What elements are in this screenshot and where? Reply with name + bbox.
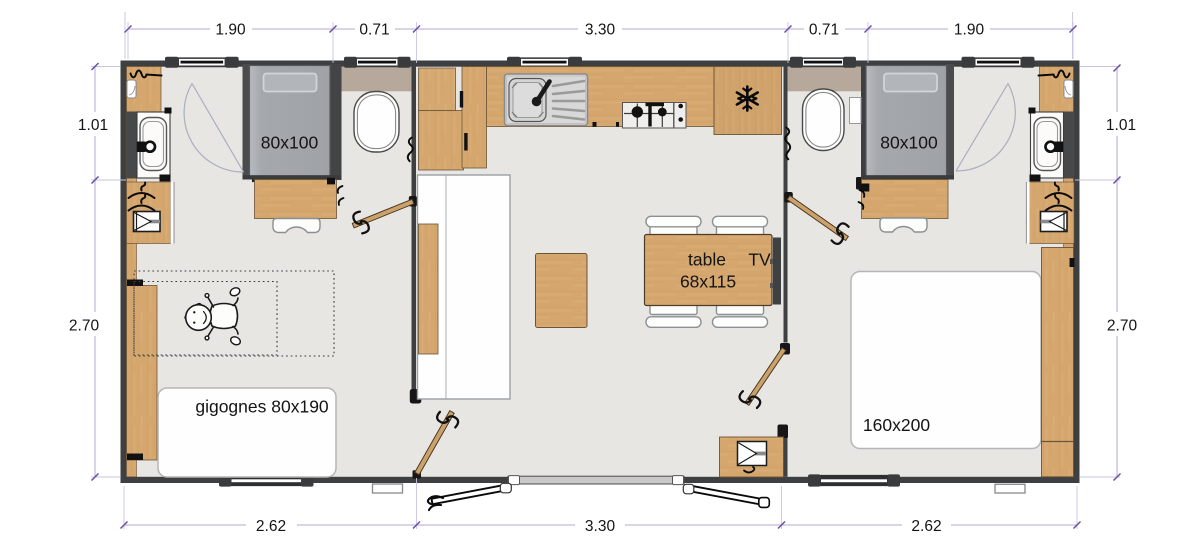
svg-text:TV: TV bbox=[748, 250, 771, 270]
svg-text:0.71: 0.71 bbox=[809, 22, 839, 39]
svg-text:0.71: 0.71 bbox=[359, 22, 389, 39]
svg-text:2.62: 2.62 bbox=[256, 518, 286, 535]
svg-text:3.30: 3.30 bbox=[585, 518, 616, 535]
svg-text:80x100: 80x100 bbox=[261, 133, 319, 153]
svg-text:2.70: 2.70 bbox=[1107, 318, 1138, 335]
svg-text:table: table bbox=[688, 250, 726, 270]
svg-text:2.62: 2.62 bbox=[911, 518, 941, 535]
svg-text:1.90: 1.90 bbox=[954, 22, 985, 39]
svg-text:68x115: 68x115 bbox=[680, 272, 736, 292]
svg-text:1.90: 1.90 bbox=[215, 22, 246, 39]
svg-text:1.01: 1.01 bbox=[1106, 117, 1136, 134]
svg-text:2.70: 2.70 bbox=[69, 318, 100, 335]
svg-text:gigognes 80x190: gigognes 80x190 bbox=[195, 397, 329, 417]
svg-text:3.30: 3.30 bbox=[585, 22, 616, 39]
svg-text:160x200: 160x200 bbox=[863, 415, 930, 435]
svg-text:1.01: 1.01 bbox=[78, 117, 108, 134]
svg-text:80x100: 80x100 bbox=[880, 133, 938, 153]
